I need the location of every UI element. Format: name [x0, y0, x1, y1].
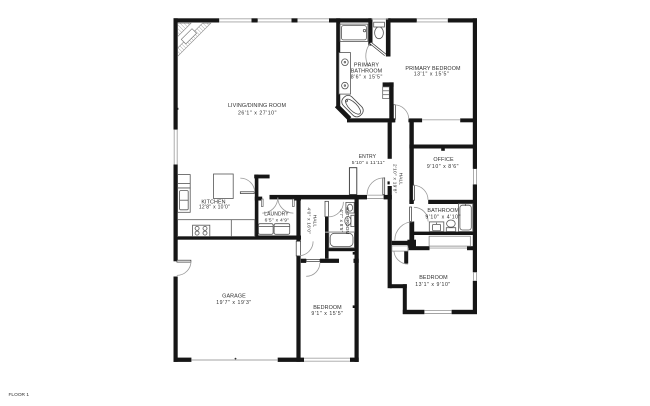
svg-text:9'10" x 4'10": 9'10" x 4'10" [425, 214, 461, 220]
svg-text:LIVING/DINING ROOM: LIVING/DINING ROOM [228, 103, 287, 109]
svg-text:13'1" x 15'5": 13'1" x 15'5" [414, 72, 450, 78]
svg-text:GARAGE: GARAGE [222, 293, 246, 299]
svg-text:13'1" x 9'10": 13'1" x 9'10" [415, 282, 451, 288]
svg-text:BEDROOM: BEDROOM [313, 305, 342, 311]
svg-text:PRIMARY: PRIMARY [354, 62, 379, 68]
svg-text:26'1" x 27'10": 26'1" x 27'10" [238, 111, 277, 117]
svg-text:BEDROOM: BEDROOM [419, 275, 448, 281]
svg-text:12'8" x 10'0": 12'8" x 10'0" [199, 205, 230, 211]
svg-text:2'10" x 19'8": 2'10" x 19'8" [393, 164, 398, 194]
svg-text:6'5" x 4'9": 6'5" x 4'9" [265, 218, 290, 224]
svg-text:BATHROOM: BATHROOM [345, 207, 350, 234]
svg-text:FLOOR 1: FLOOR 1 [9, 392, 30, 398]
svg-text:5'10" x 11'11": 5'10" x 11'11" [352, 160, 385, 166]
svg-text:BATHROOM: BATHROOM [427, 208, 459, 214]
svg-text:9'1" x 15'5": 9'1" x 15'5" [311, 311, 343, 317]
svg-text:9'10" x 8'6": 9'10" x 8'6" [427, 164, 459, 170]
svg-text:LAUNDRY: LAUNDRY [264, 212, 289, 218]
svg-text:4'7" x 8'5": 4'7" x 8'5" [339, 209, 344, 232]
svg-text:OFFICE: OFFICE [433, 157, 454, 163]
svg-text:19'7" x 19'3": 19'7" x 19'3" [216, 300, 252, 306]
svg-text:4'0" x 16'0": 4'0" x 16'0" [307, 208, 312, 235]
svg-text:8'6" x 15'5": 8'6" x 15'5" [351, 74, 383, 80]
svg-text:ENTRY: ENTRY [359, 154, 377, 160]
